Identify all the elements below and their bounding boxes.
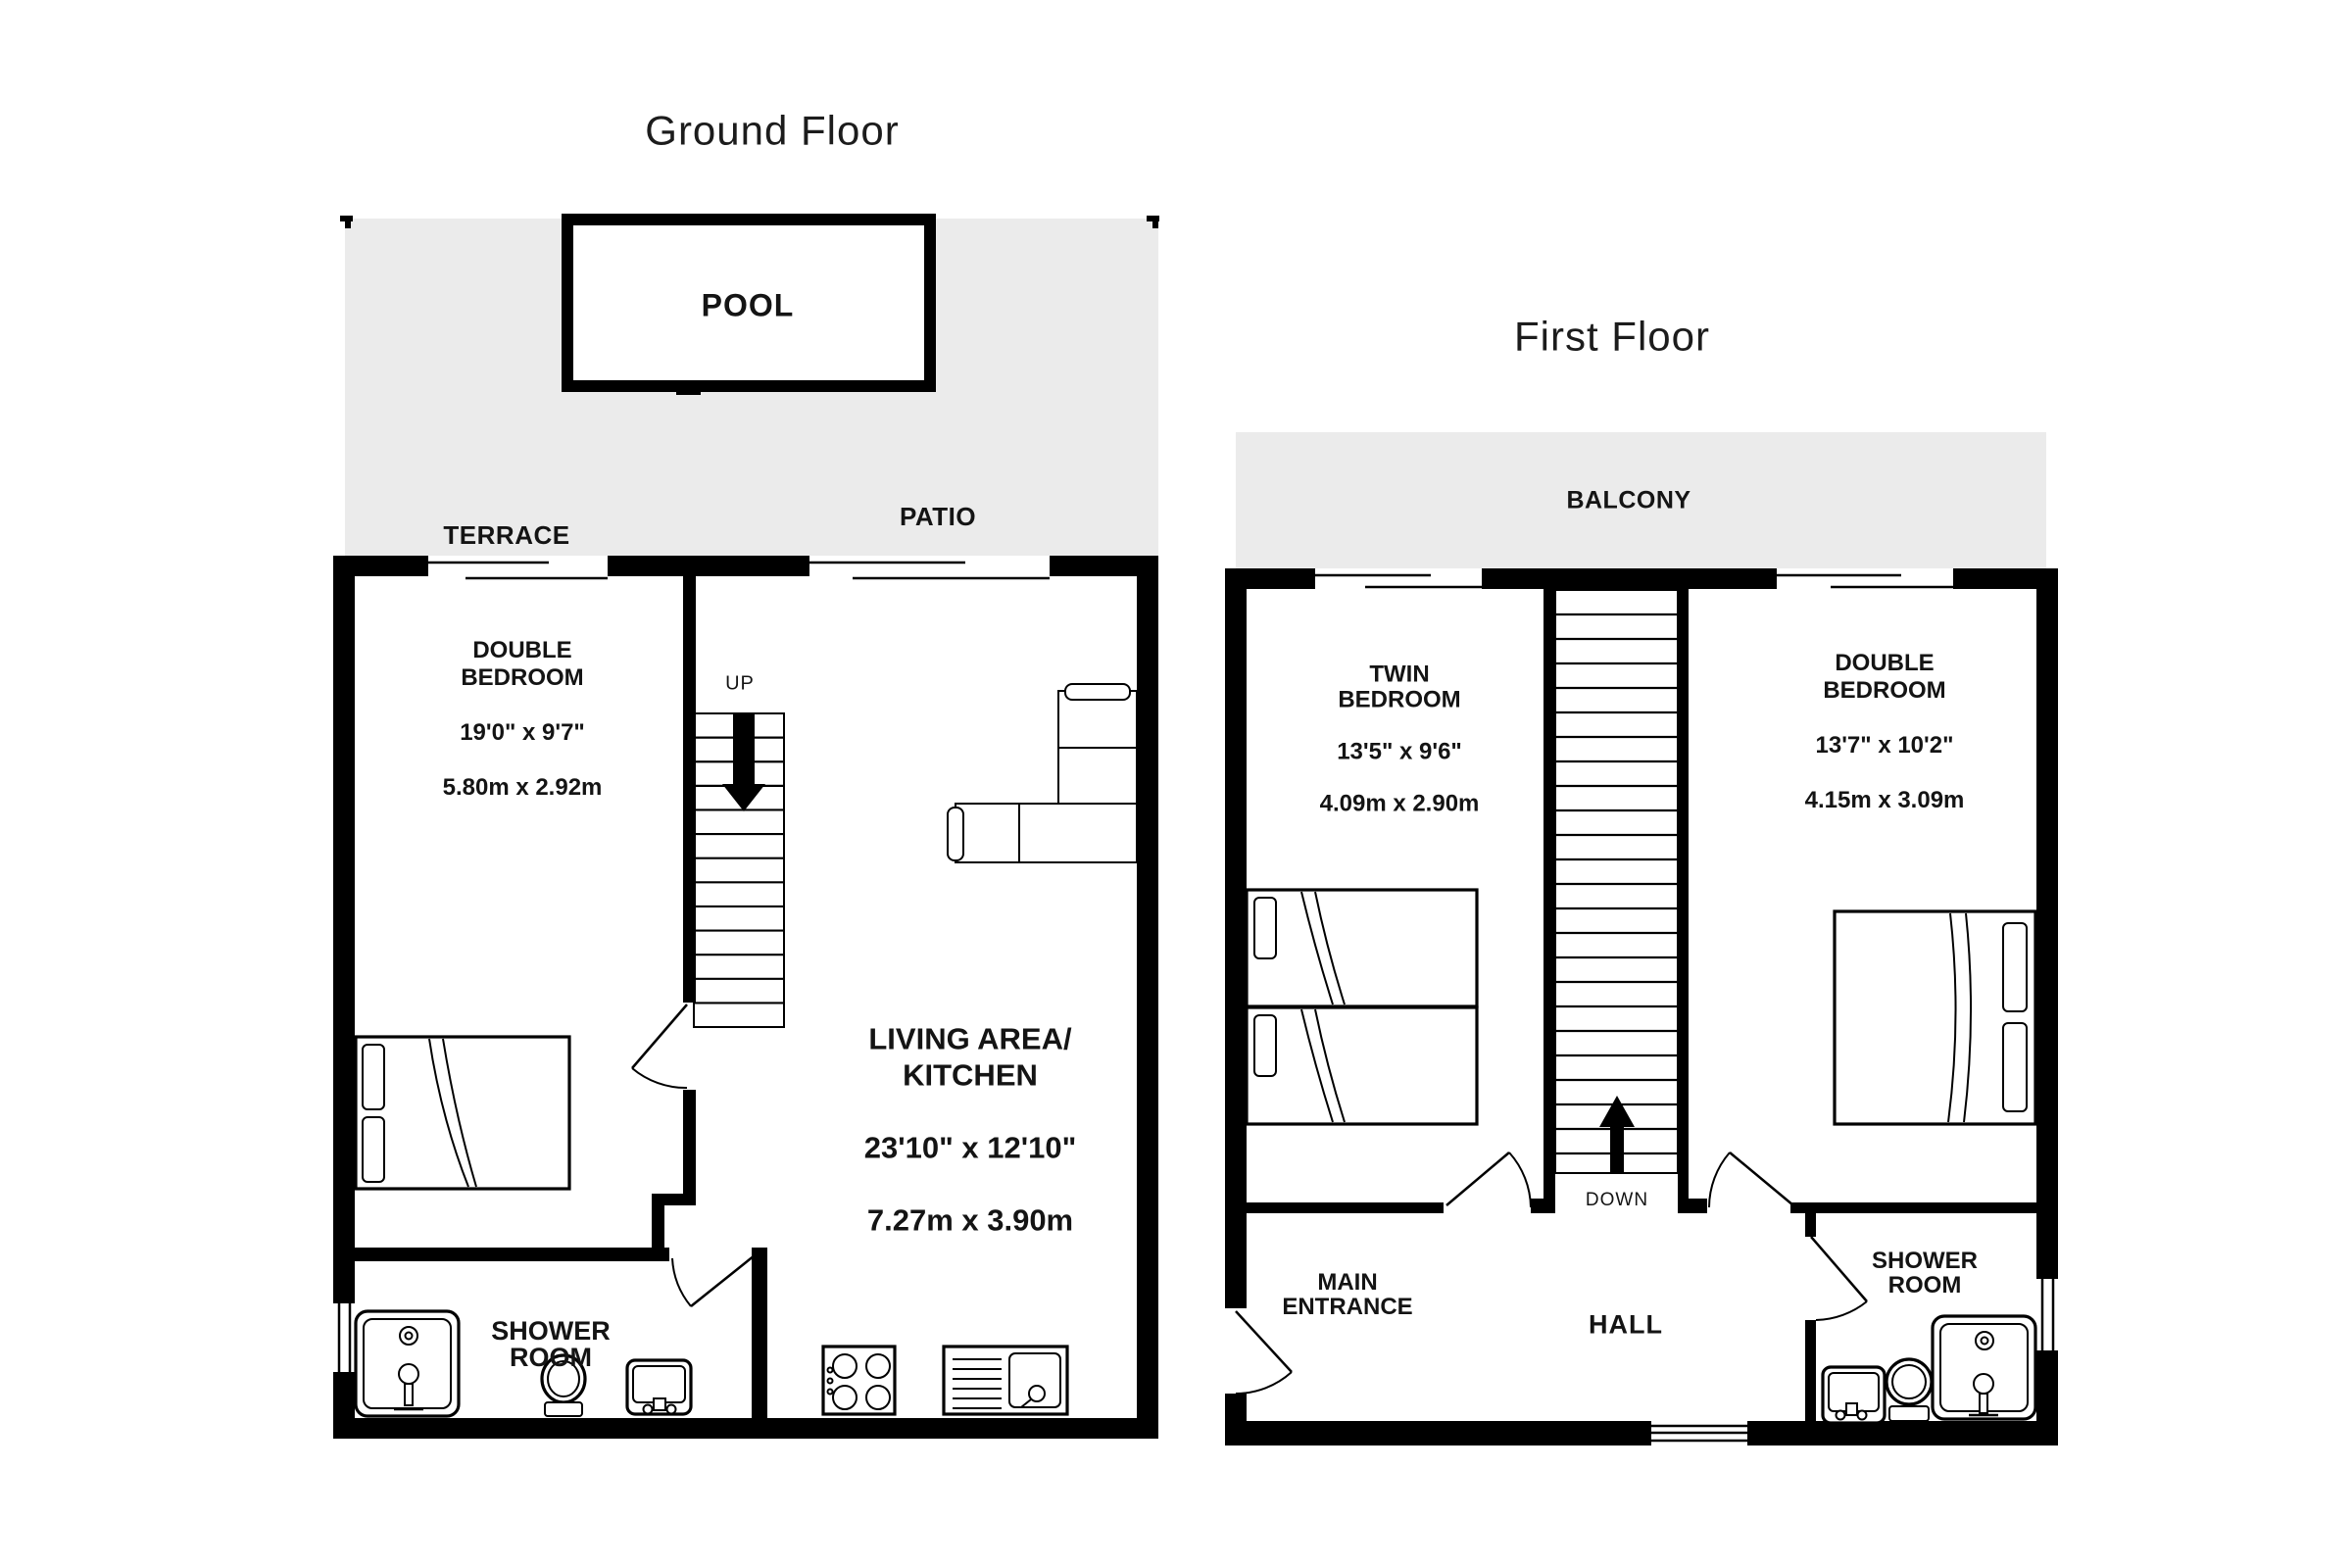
hall-top-wall-right xyxy=(1790,1202,2036,1213)
room-name: TWIN BEDROOM xyxy=(1338,661,1460,713)
first-shower-wall-stub xyxy=(1805,1213,1816,1237)
main-entrance-door-gap xyxy=(1225,1308,1247,1394)
hall-label: HALL xyxy=(1589,1309,1663,1340)
first-floor-title: First Floor xyxy=(1514,314,1710,362)
twin-bedroom-label: TWIN BEDROOM 13'5" x 9'6" 4.09m x 2.90m xyxy=(1320,635,1480,817)
ground-floor-title: Ground Floor xyxy=(645,108,899,156)
room-dims-metric: 7.27m x 3.90m xyxy=(867,1203,1073,1238)
room-name: DOUBLE BEDROOM xyxy=(1823,650,1945,704)
ground-shower-wall-v xyxy=(752,1248,767,1418)
pool-label: POOL xyxy=(702,287,795,323)
floorplan-canvas: Ground Floor First Floor POOL TERRACE PA… xyxy=(0,0,2352,1568)
terrace-corner-tick-right2 xyxy=(1152,216,1158,228)
first-stairwell-wall-right xyxy=(1678,589,1689,1213)
terrace-corner-tick-left2 xyxy=(345,216,351,228)
room-dims-metric: 5.80m x 2.92m xyxy=(443,774,603,801)
first-shower-wall-lower xyxy=(1805,1320,1816,1421)
ground-stair-wall-lower xyxy=(683,1090,696,1198)
first-stairwell-wall-left xyxy=(1543,589,1555,1213)
room-name: LIVING AREA/ KITCHEN xyxy=(868,1022,1071,1093)
main-entrance-label: MAIN ENTRANCE xyxy=(1282,1270,1412,1319)
down-label: DOWN xyxy=(1586,1190,1648,1211)
room-dims-imperial: 13'5" x 9'6" xyxy=(1337,738,1462,764)
ground-left-window-gap xyxy=(333,1303,355,1372)
ground-shower-room-label: SHOWER ROOM xyxy=(491,1318,611,1371)
first-stairwell-foot-right xyxy=(1678,1199,1707,1213)
hall-top-wall-left xyxy=(1247,1202,1444,1213)
pool-step-tick xyxy=(676,386,701,395)
ground-patio-door-gap xyxy=(809,556,1050,576)
first-twin-window-gap xyxy=(1315,568,1482,589)
first-stairwell-foot-left xyxy=(1531,1199,1555,1213)
room-dims-metric: 4.15m x 3.09m xyxy=(1805,787,1965,813)
ground-bedroom-jog-wall-h xyxy=(652,1194,696,1205)
up-label: UP xyxy=(725,672,755,695)
room-dims-imperial: 19'0" x 9'7" xyxy=(460,719,585,746)
ground-double-bedroom-label: DOUBLE BEDROOM 19'0" x 9'7" 5.80m x 2.92… xyxy=(443,610,603,802)
room-dims-imperial: 13'7" x 10'2" xyxy=(1816,732,1954,759)
first-bottom-window-gap xyxy=(1651,1421,1747,1445)
first-double-bedroom-label: DOUBLE BEDROOM 13'7" x 10'2" 4.15m x 3.0… xyxy=(1805,622,1965,814)
living-area-label: LIVING AREA/ KITCHEN 23'10" x 12'10" 7.2… xyxy=(864,985,1077,1239)
patio-label: PATIO xyxy=(900,502,976,531)
room-dims-metric: 4.09m x 2.90m xyxy=(1320,790,1480,816)
balcony-label: BALCONY xyxy=(1566,487,1690,515)
ground-bedroom-window-gap xyxy=(428,556,608,576)
terrace-label: TERRACE xyxy=(443,520,569,550)
ground-shower-wall-h xyxy=(355,1248,669,1261)
first-right-window-gap xyxy=(2036,1279,2058,1350)
first-double-window-gap xyxy=(1777,568,1953,589)
ground-bedroom-jog-wall-v xyxy=(652,1205,664,1249)
ground-stair-wall-upper xyxy=(683,576,696,1003)
room-name: DOUBLE BEDROOM xyxy=(461,637,583,691)
room-dims-imperial: 23'10" x 12'10" xyxy=(864,1131,1077,1165)
first-shower-room-label: SHOWER ROOM xyxy=(1872,1249,1978,1298)
